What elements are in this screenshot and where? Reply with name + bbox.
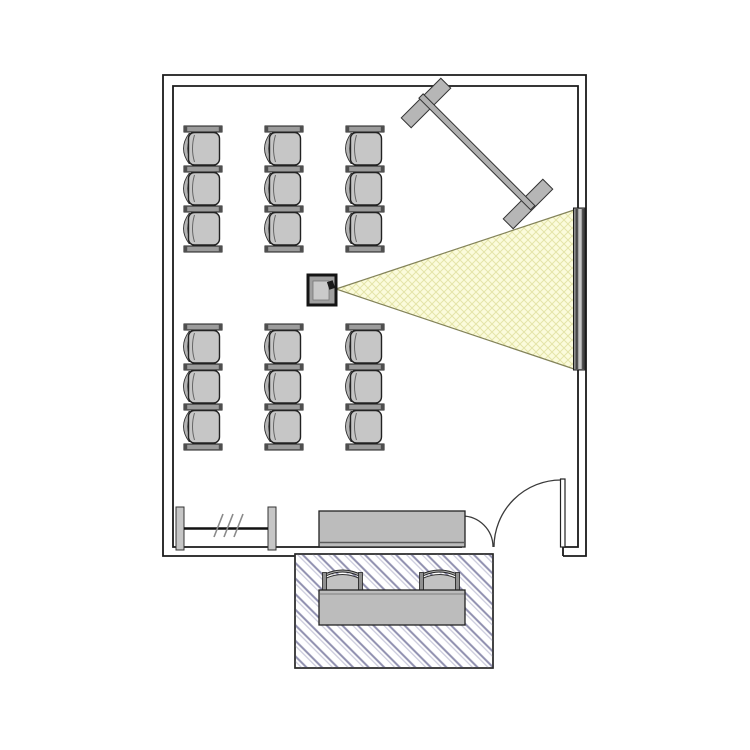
seat-column [184, 324, 223, 450]
coat-rack-post [268, 507, 276, 550]
door-swing-arc-large [494, 480, 561, 547]
door [462, 479, 565, 547]
door-leaf [561, 479, 566, 547]
seat-column [346, 324, 385, 450]
floor-plan-canvas [0, 0, 750, 750]
entry-mat [295, 554, 493, 668]
seat-column [265, 324, 304, 450]
door-swing-arc-small [462, 516, 493, 547]
seat-column [184, 126, 223, 252]
hanger-marks [214, 514, 243, 537]
floor-plan-page [0, 0, 750, 750]
partition-bar [419, 94, 535, 210]
mobile-partition [401, 78, 552, 228]
seat-column [346, 126, 385, 252]
projection-screen [574, 208, 586, 370]
sideboard [319, 511, 465, 547]
seat-column [265, 126, 304, 252]
waiting-table [319, 590, 465, 625]
coat-rack-post [176, 507, 184, 550]
projector [308, 275, 336, 305]
coat-rack [176, 507, 276, 550]
